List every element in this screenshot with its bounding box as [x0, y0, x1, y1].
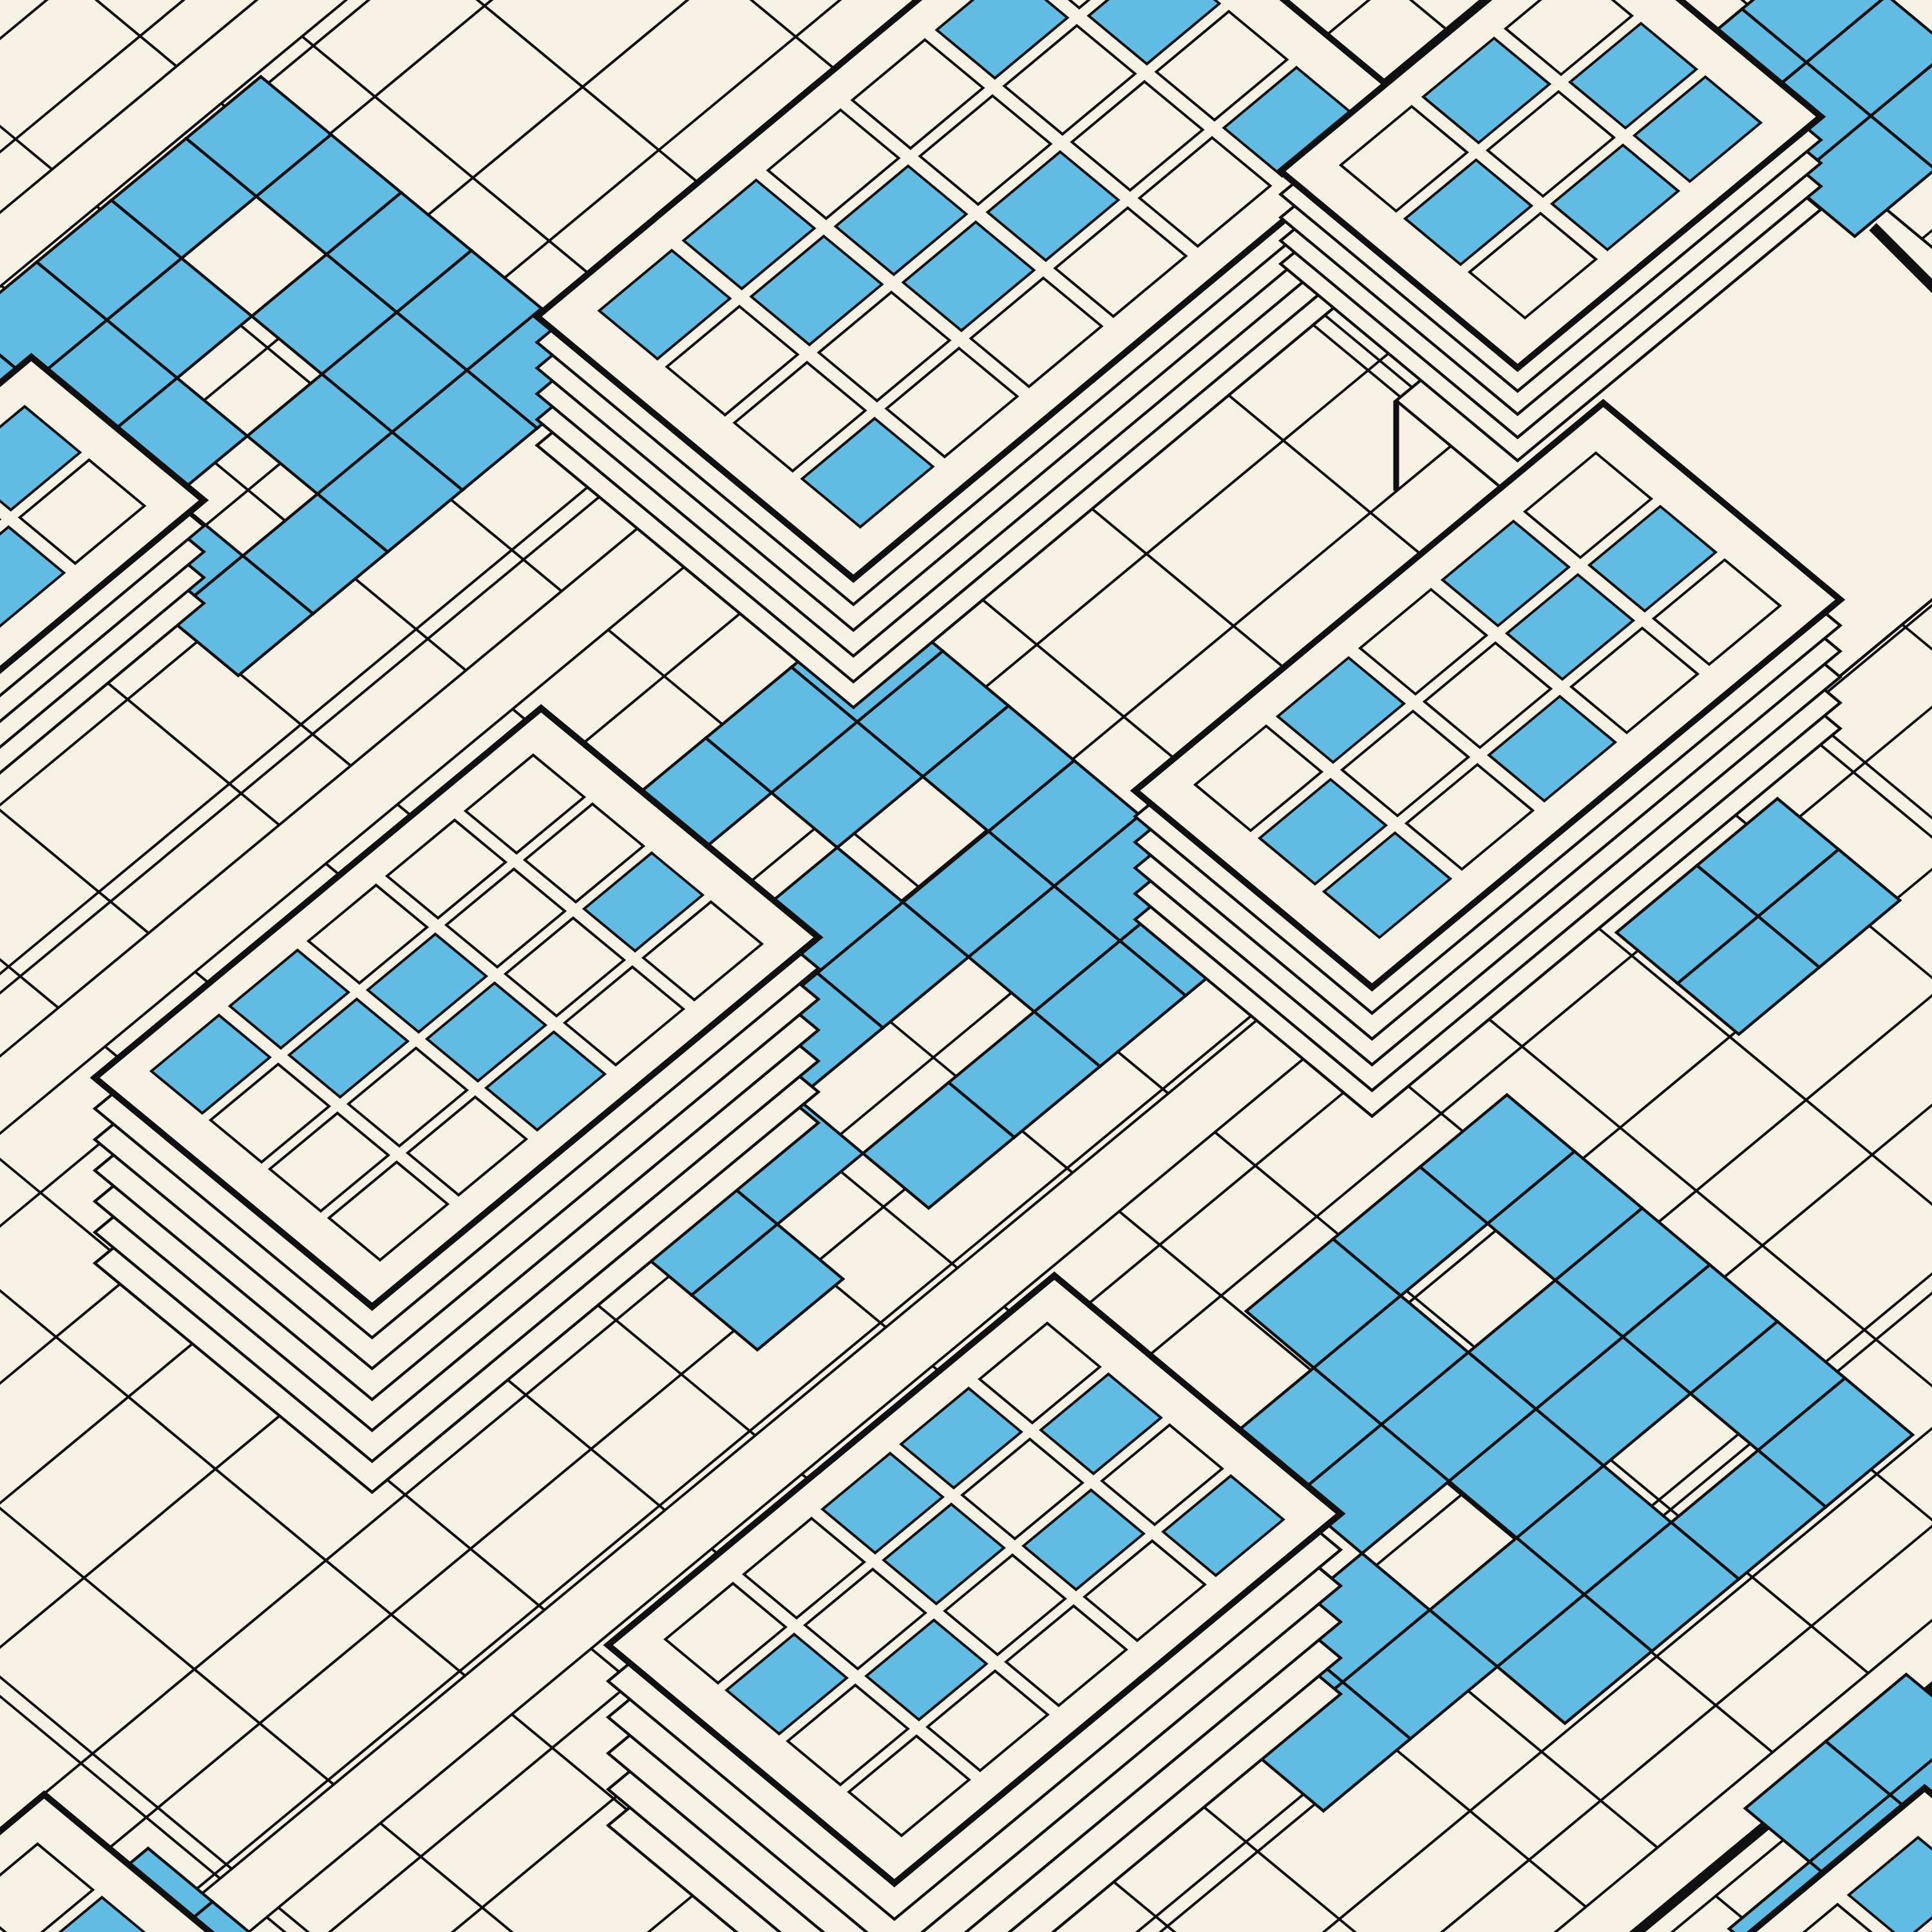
- artwork-canvas: [0, 0, 1932, 1932]
- artwork: [0, 0, 1932, 1932]
